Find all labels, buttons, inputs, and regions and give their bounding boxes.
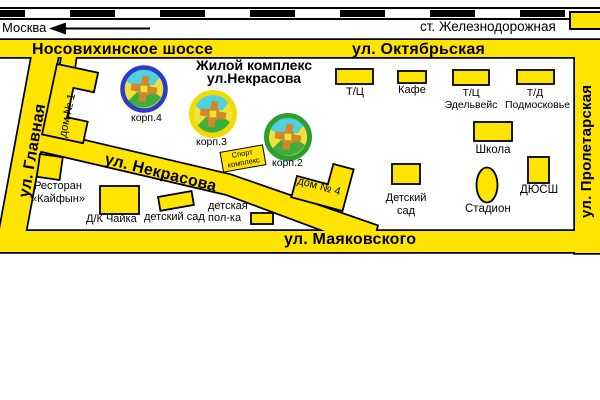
complex-title: Жилой комплекс ул.Некрасова: [188, 59, 320, 85]
tc-edelweis-label: Т/Ц Эдельвейс: [443, 87, 499, 111]
korp3-label: корп.3: [196, 137, 227, 148]
detsky-sad-right-label: Детский сад: [385, 192, 427, 217]
building-detskaya-poliklinika: [251, 213, 273, 224]
detsky-sad-left-label: детский сад: [144, 212, 205, 224]
railway-line: [0, 8, 600, 19]
road-label-oktyabrskaya: ул. Октябрьская: [352, 41, 485, 58]
building-tc-edelweis: [453, 70, 489, 85]
building-detsky-sad-left: [158, 191, 194, 211]
building-tc1: [336, 69, 373, 84]
building-restoran-kaifyn: [37, 154, 63, 180]
building-korp2: [267, 116, 310, 159]
korp2-label: корп.2: [272, 158, 303, 169]
kafe-label: Кафе: [398, 85, 426, 97]
road-label-nosovikhinskoe: Носовихинское шоссе: [32, 41, 213, 58]
building-korp3: [192, 93, 235, 136]
building-dk-chaika: [100, 186, 139, 214]
stadion-label: Стадион: [465, 203, 511, 215]
building-dyussh: [528, 157, 549, 183]
tc1-label: Т/Ц: [336, 87, 374, 99]
station-platform: [570, 12, 600, 29]
station-label: ст. Железнодорожная: [420, 20, 556, 35]
dk-chaika-label: Д/К Чайка: [86, 214, 137, 226]
road-label-mayakovskogo: ул. Маяковского: [284, 231, 416, 248]
korp4-label: корп.4: [131, 113, 162, 124]
detskaya-poliklinika-label: детская пол-ка: [208, 201, 248, 224]
road-label-proletarskaya: ул. Пролетарская: [579, 85, 595, 218]
building-shkola: [474, 122, 512, 141]
restoran-label: Ресторан «Кайфын»: [27, 180, 89, 205]
building-kafe: [398, 71, 426, 83]
shkola-label: Школа: [474, 144, 512, 156]
building-td-podmoskovye: [517, 70, 554, 84]
building-detsky-sad-right: [392, 164, 420, 184]
moscow-label: Москва: [2, 21, 46, 35]
td-podmoskovye-label: Т/Д Подмосковье: [505, 87, 565, 111]
moscow-arrow-icon: [49, 23, 150, 35]
building-stadion: [477, 168, 498, 203]
building-korp4: [123, 68, 166, 111]
street-map: Москва ст. Железнодорожная Носовихинское…: [0, 0, 600, 400]
dyussh-label: ДЮСШ: [520, 184, 558, 196]
